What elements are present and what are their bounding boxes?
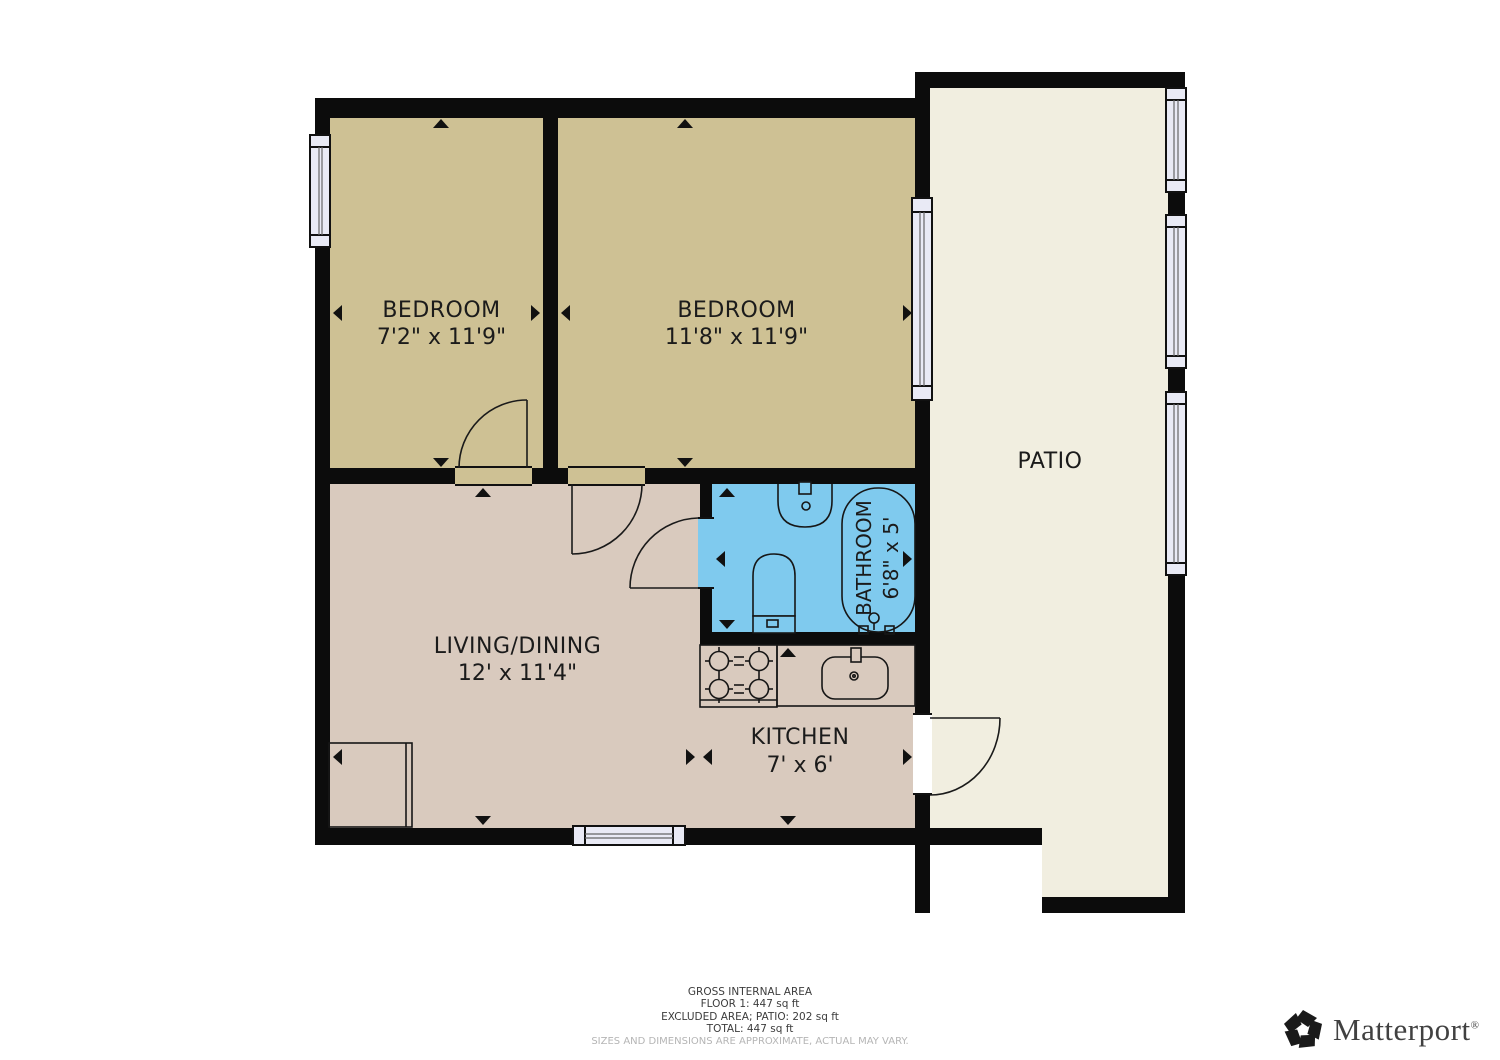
bathroom-name: BATHROOM (851, 498, 878, 618)
matterport-branding: Matterport® (1281, 1008, 1479, 1052)
area-floor1: FLOOR 1: 447 sq ft (0, 998, 1500, 1010)
patio-window-3-icon (1166, 392, 1186, 575)
kitchen-dims: 7' x 6' (700, 753, 900, 778)
bedroom2-patio-window-icon (912, 198, 932, 400)
registered-mark: ® (1471, 1020, 1480, 1032)
bedroom2-door-threshold (568, 466, 645, 486)
living-dims: 12' x 11'4" (330, 661, 705, 686)
bathroom-door-threshold (698, 518, 714, 588)
patio-door-threshold (913, 714, 932, 794)
patio-window-2-icon (1166, 215, 1186, 368)
area-total: TOTAL: 447 sq ft (0, 1023, 1500, 1035)
bathroom-label: BATHROOM 6'8" x 5' (851, 498, 911, 618)
matterport-logo-text: Matterport® (1333, 1012, 1479, 1048)
living-window-icon (573, 826, 685, 845)
bathroom-door-icon (630, 518, 698, 588)
patio-window-1-icon (1166, 88, 1186, 192)
patio-label: PATIO (930, 449, 1170, 474)
matterport-logo-icon (1281, 1008, 1325, 1052)
bathroom-sink-icon (778, 482, 832, 527)
area-disclaimer: SIZES AND DIMENSIONS ARE APPROXIMATE, AC… (0, 1036, 1500, 1048)
kitchen-counter-icon (777, 645, 915, 706)
bedroom1-dims: 7'2" x 11'9" (339, 325, 544, 350)
plan-linework (0, 0, 1500, 1060)
bedroom1-label: BEDROOM (339, 298, 544, 323)
bedroom2-door-icon (572, 484, 642, 554)
area-summary-title: GROSS INTERNAL AREA (0, 986, 1500, 998)
bathroom-dims: 6'8" x 5' (878, 498, 905, 618)
bedroom1-window-icon (310, 135, 330, 247)
bedroom2-dims: 11'8" x 11'9" (558, 325, 915, 350)
area-summary: GROSS INTERNAL AREA FLOOR 1: 447 sq ft E… (0, 986, 1500, 1048)
bedroom1-door-threshold (455, 466, 532, 486)
bedroom1-door-icon (459, 400, 527, 468)
living-label: LIVING/DINING (330, 634, 705, 659)
bedroom2-label: BEDROOM (558, 298, 915, 323)
toilet-icon (753, 554, 795, 633)
patio-door-icon (930, 718, 1000, 795)
kitchen-label: KITCHEN (700, 725, 900, 750)
floor-plan-page: BEDROOM 7'2" x 11'9" BEDROOM 11'8" x 11'… (0, 0, 1500, 1060)
area-excluded: EXCLUDED AREA; PATIO: 202 sq ft (0, 1011, 1500, 1023)
stove-icon (700, 645, 777, 707)
